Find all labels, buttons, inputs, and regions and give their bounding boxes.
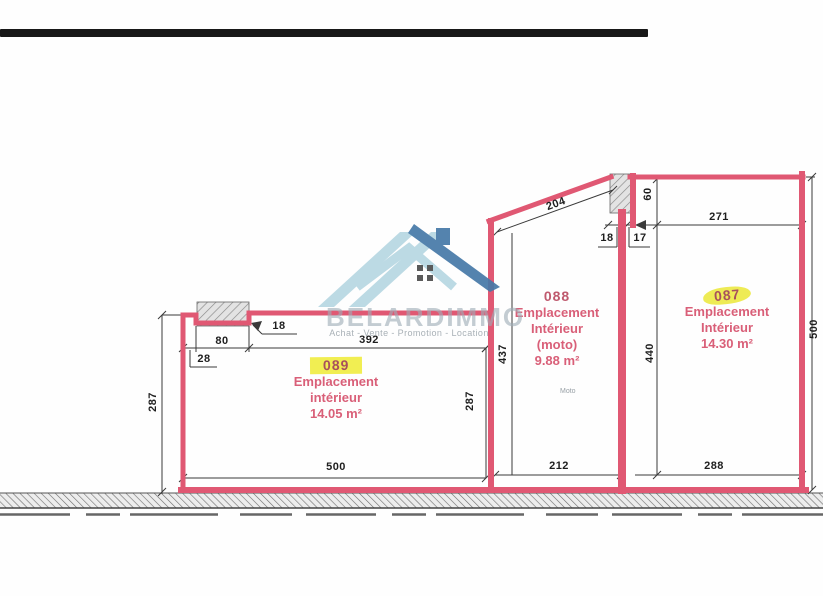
dimension-notch-width: 80 bbox=[215, 335, 228, 347]
dimension-087-left-height: 440 bbox=[644, 343, 656, 363]
dimension-289-left-height: 287 bbox=[147, 392, 159, 412]
parcel-087-label: 087 Emplacement Intérieur 14.30 m² bbox=[667, 287, 787, 352]
road-hatch-strip bbox=[0, 493, 823, 515]
dimension-089-right-height: 287 bbox=[464, 391, 476, 411]
dimension-wall-gap: 17 bbox=[633, 232, 646, 244]
parcel-087-number: 087 bbox=[713, 286, 741, 304]
parcel-089-type: Emplacement bbox=[246, 374, 426, 390]
dimension-089-bottom-width: 500 bbox=[326, 461, 346, 473]
parcel-089-subtype: intérieur bbox=[246, 390, 426, 406]
parcel-089-area: 14.05 m² bbox=[246, 406, 426, 422]
dimension-087-top-offset: 60 bbox=[642, 187, 654, 200]
parcel-087-area: 14.30 m² bbox=[667, 336, 787, 352]
parcel-089-highlight: 089 bbox=[310, 357, 363, 374]
dimension-087-bottom-width: 288 bbox=[704, 460, 724, 472]
parcel-087-type: Emplacement bbox=[667, 304, 787, 320]
dimension-087-right-height: 500 bbox=[808, 319, 820, 339]
floor-plan-scan: 287 80 28 18 392 287 500 204 437 212 18 … bbox=[0, 0, 823, 596]
parcel-088-type: Emplacement bbox=[497, 305, 617, 321]
dimension-087-top-width: 271 bbox=[709, 211, 729, 223]
parcel-088-note: Moto bbox=[560, 388, 576, 395]
parcel-089-label: 089 Emplacement intérieur 14.05 m² bbox=[246, 357, 426, 422]
parcel-088-moto: (moto) bbox=[497, 337, 617, 353]
dimension-notch-offset: 28 bbox=[197, 353, 210, 365]
dimension-notch-depth: 18 bbox=[272, 320, 285, 332]
parcel-088-number: 088 bbox=[544, 288, 570, 304]
dimension-089-top-width: 392 bbox=[359, 334, 379, 346]
parcel-088-label: 088 Emplacement Intérieur (moto) 9.88 m² bbox=[497, 288, 617, 369]
parcel-088-area: 9.88 m² bbox=[497, 353, 617, 369]
parcel-088-subtype: Intérieur bbox=[497, 321, 617, 337]
parcel-087-subtype: Intérieur bbox=[667, 320, 787, 336]
dimension-wall-thickness: 18 bbox=[600, 232, 613, 244]
parcel-087-highlight: 087 bbox=[702, 285, 752, 306]
dimension-088-bottom-width: 212 bbox=[549, 460, 569, 472]
parcel-089-number: 089 bbox=[323, 357, 349, 373]
